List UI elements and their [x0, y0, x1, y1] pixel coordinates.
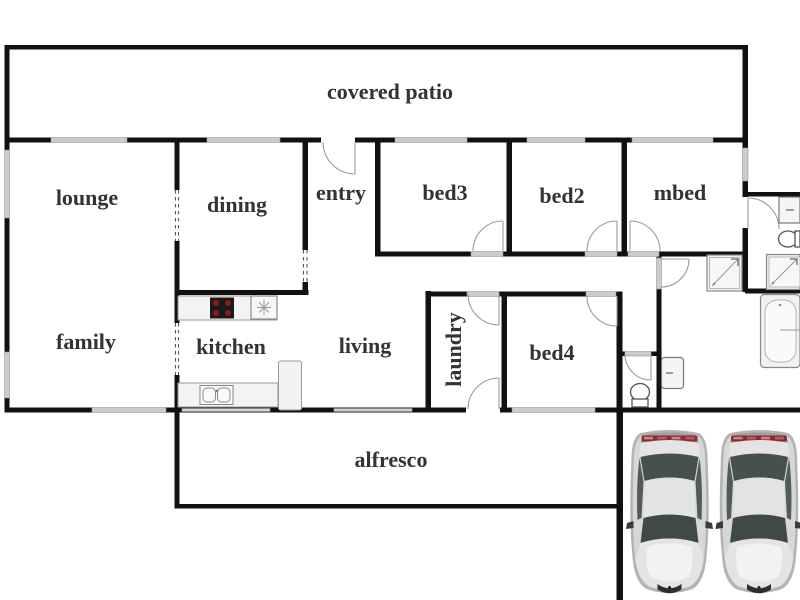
svg-text:living: living: [339, 333, 392, 358]
svg-text:dining: dining: [207, 192, 267, 217]
svg-text:mbed: mbed: [654, 180, 707, 205]
svg-text:bed4: bed4: [529, 340, 574, 365]
svg-text:alfresco: alfresco: [355, 447, 428, 472]
svg-text:bed3: bed3: [422, 180, 467, 205]
svg-text:lounge: lounge: [56, 185, 119, 210]
svg-text:laundry: laundry: [441, 312, 466, 387]
svg-text:entry: entry: [316, 180, 366, 205]
svg-text:covered patio: covered patio: [327, 79, 453, 104]
svg-text:bed2: bed2: [539, 183, 584, 208]
svg-text:family: family: [56, 329, 116, 354]
svg-text:kitchen: kitchen: [196, 334, 266, 359]
